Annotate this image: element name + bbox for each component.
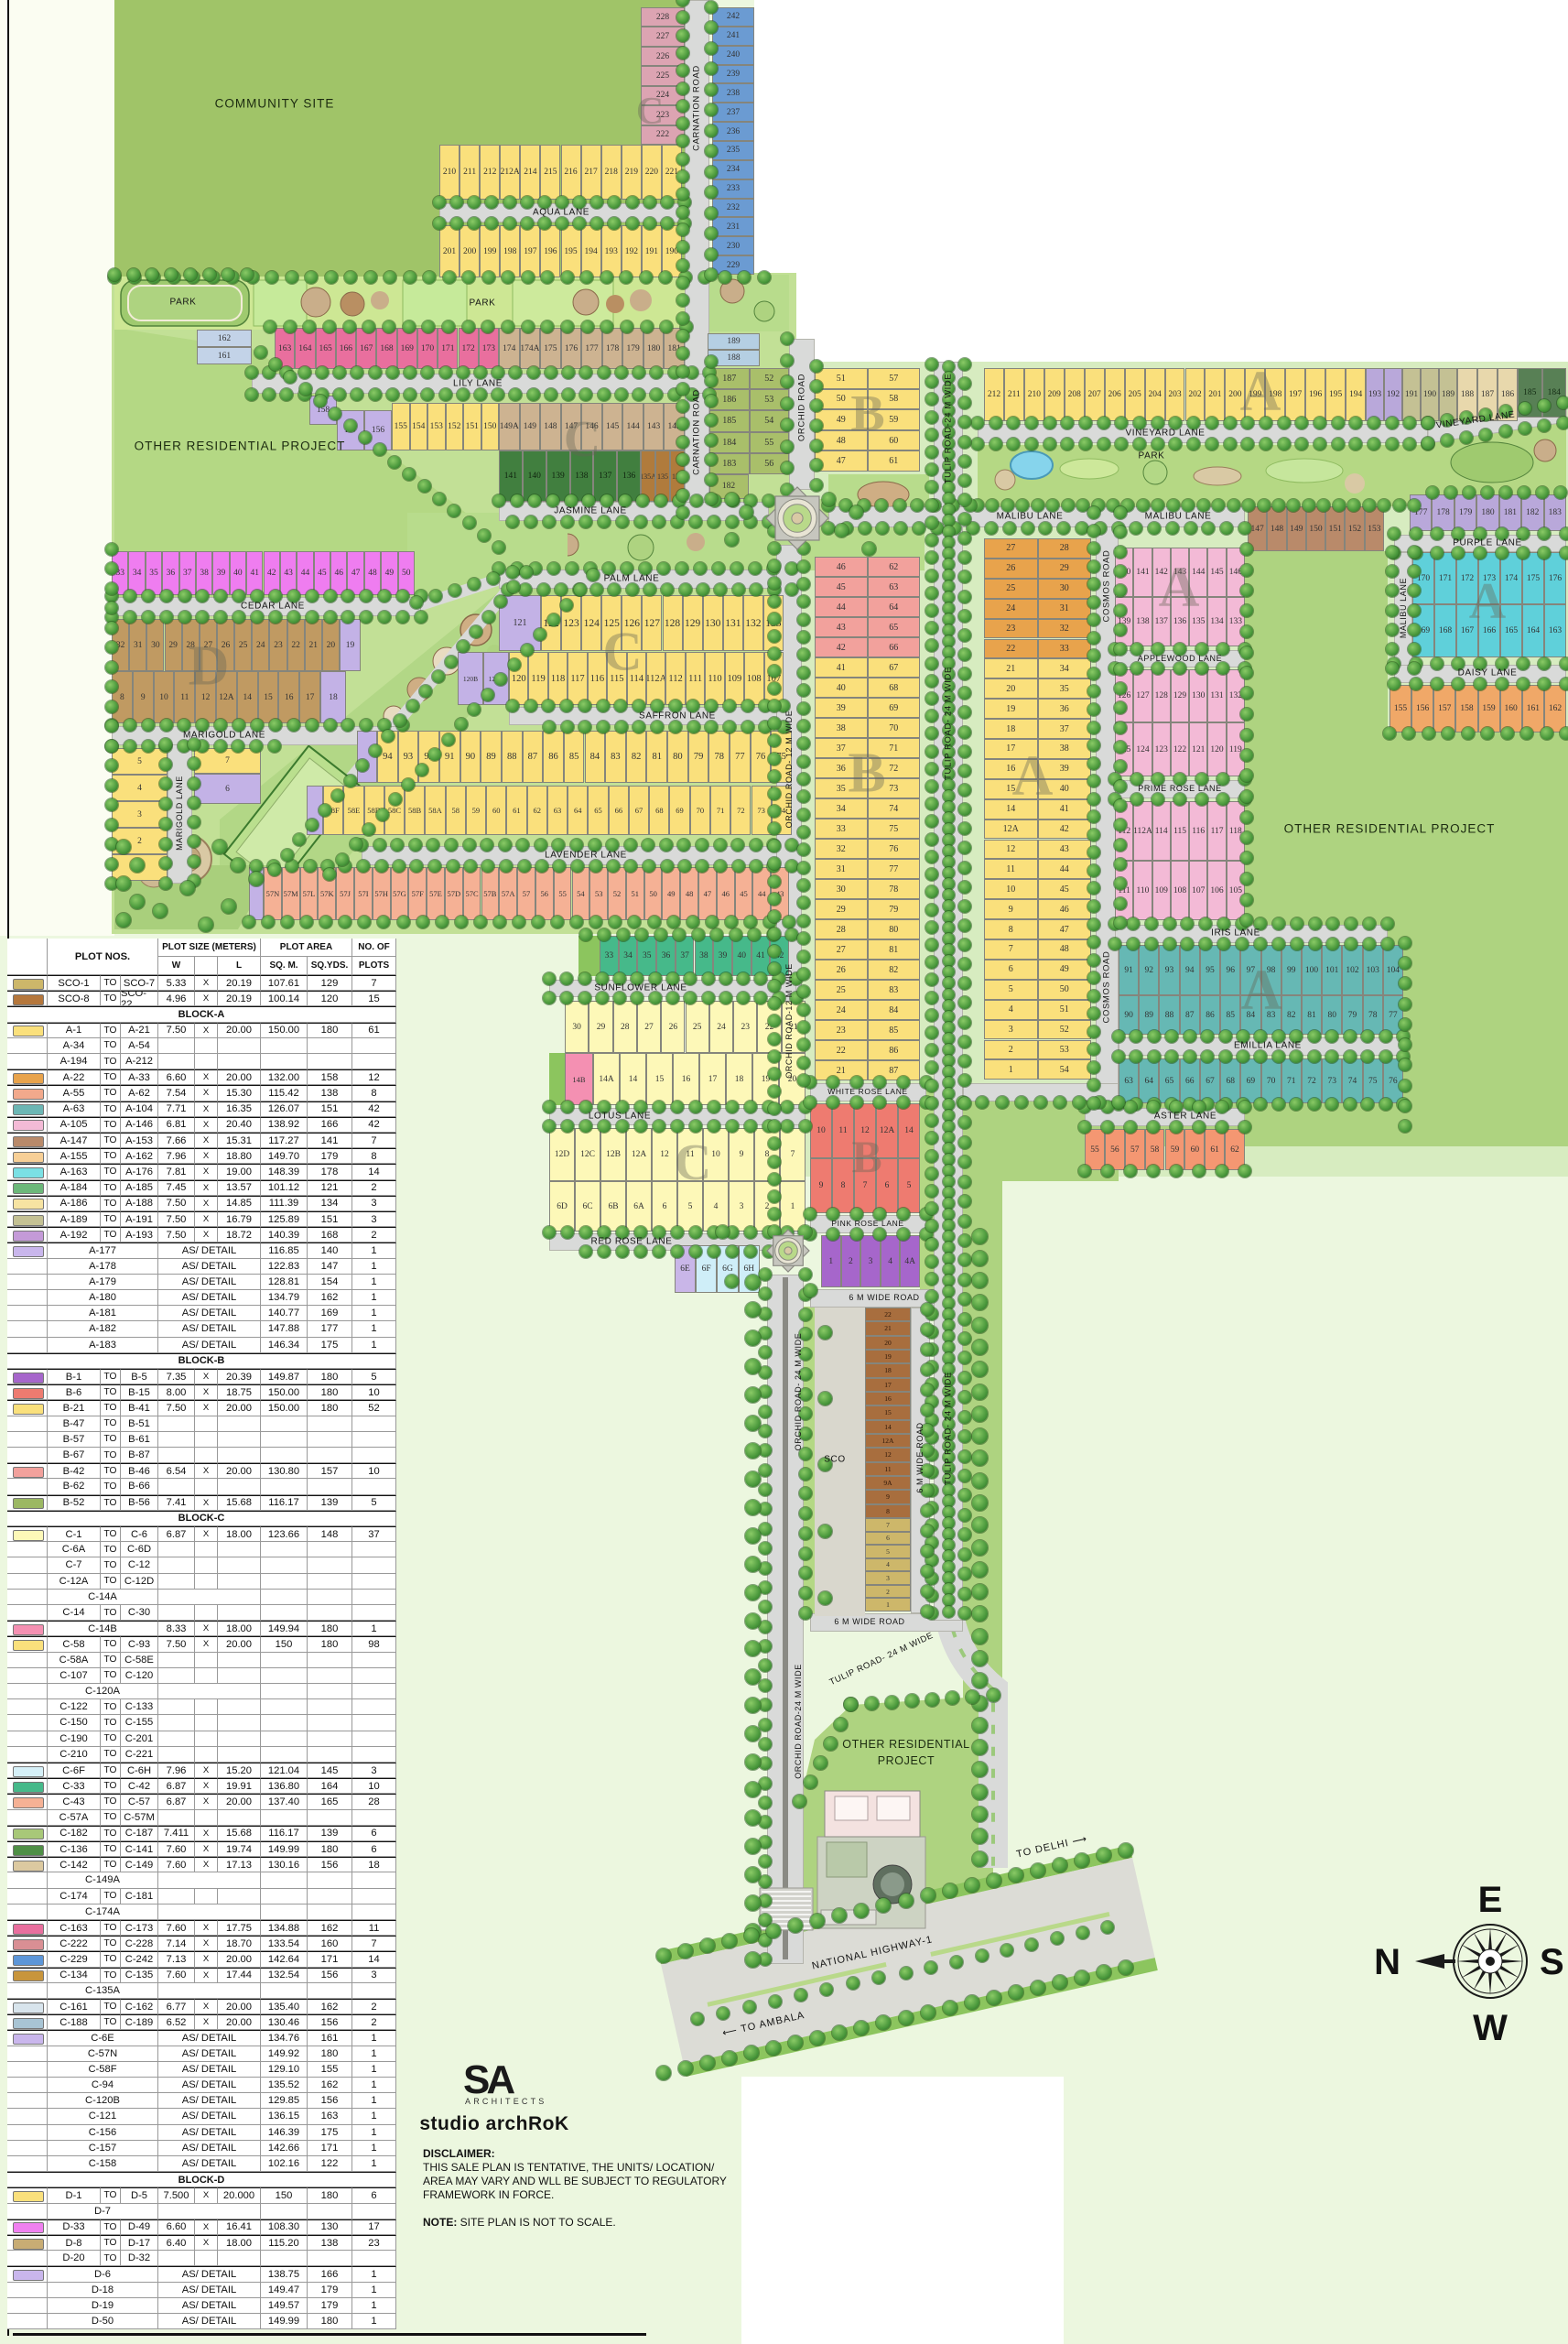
svg-text:W: W <box>1473 2008 1508 2048</box>
svg-text:N: N <box>1374 1942 1400 1982</box>
svg-text:ARCHITECTS: ARCHITECTS <box>465 2097 547 2106</box>
svg-text:SA: SA <box>463 2057 514 2102</box>
svg-text:S: S <box>1540 1942 1564 1982</box>
svg-text:E: E <box>1478 1880 1503 1920</box>
